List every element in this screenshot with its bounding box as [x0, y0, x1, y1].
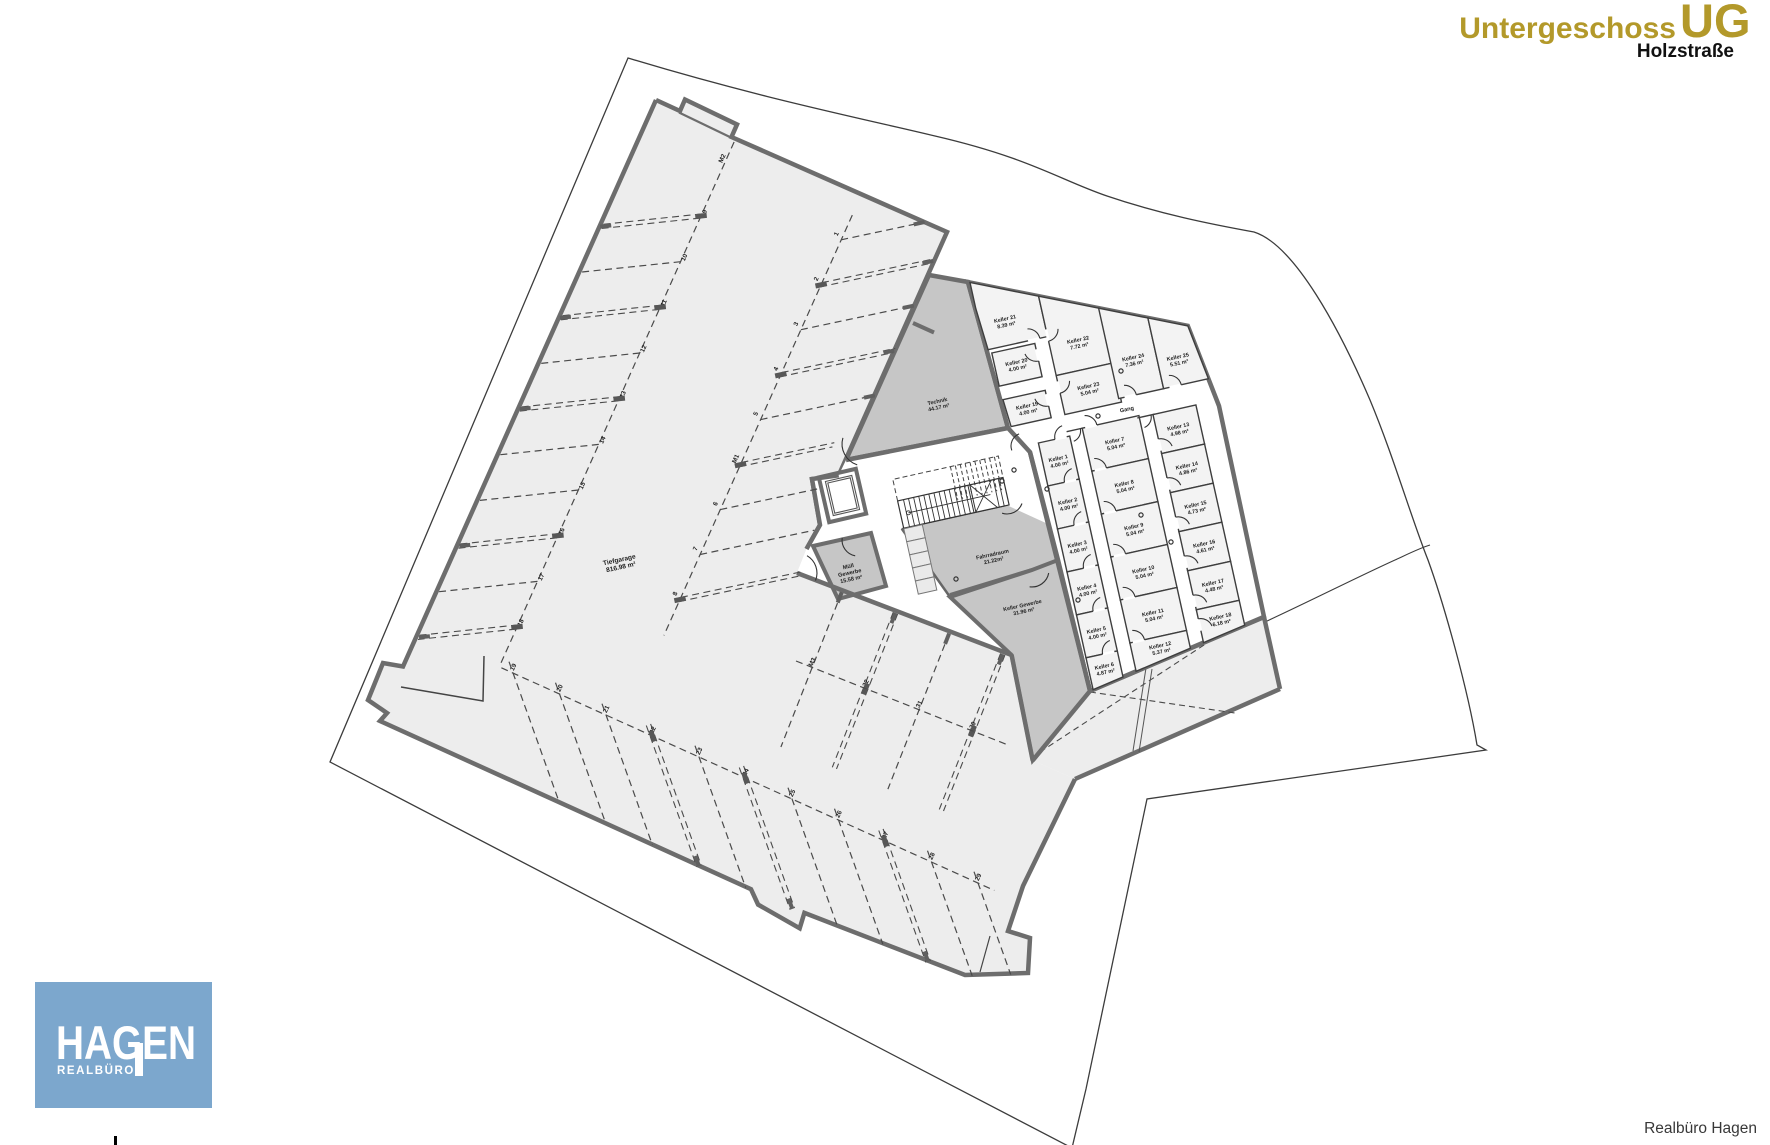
- svg-text:Realbüro Hagen: Realbüro Hagen: [1644, 1120, 1757, 1137]
- svg-text:HAGEN: HAGEN: [56, 1016, 196, 1069]
- svg-text:REALBÜRO: REALBÜRO: [57, 1064, 135, 1077]
- svg-text:Holzstraße: Holzstraße: [1637, 41, 1734, 62]
- svg-text:UG: UG: [1680, 0, 1751, 47]
